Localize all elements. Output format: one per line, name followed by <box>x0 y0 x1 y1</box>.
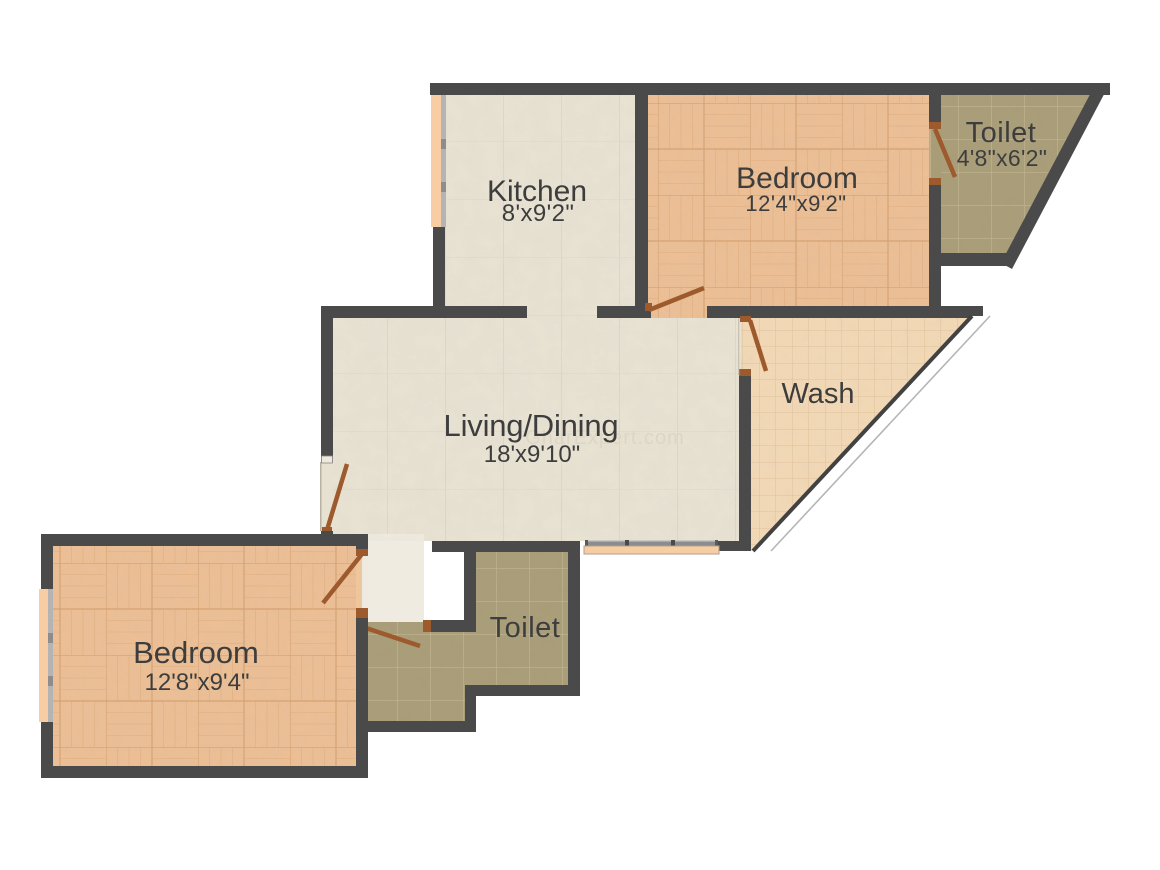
svg-text:8'x9'2": 8'x9'2" <box>502 200 575 227</box>
svg-text:18'x9'10": 18'x9'10" <box>484 441 580 468</box>
svg-text:Bedroom: Bedroom <box>133 635 259 670</box>
svg-text:Living/Dining: Living/Dining <box>444 408 619 443</box>
svg-text:Toilet: Toilet <box>490 612 561 644</box>
svg-text:12'4"x9'2": 12'4"x9'2" <box>745 191 846 216</box>
svg-text:Wash: Wash <box>781 378 854 410</box>
svg-text:4'8"x6'2": 4'8"x6'2" <box>957 145 1047 171</box>
svg-text:12'8"x9'4": 12'8"x9'4" <box>145 669 250 696</box>
